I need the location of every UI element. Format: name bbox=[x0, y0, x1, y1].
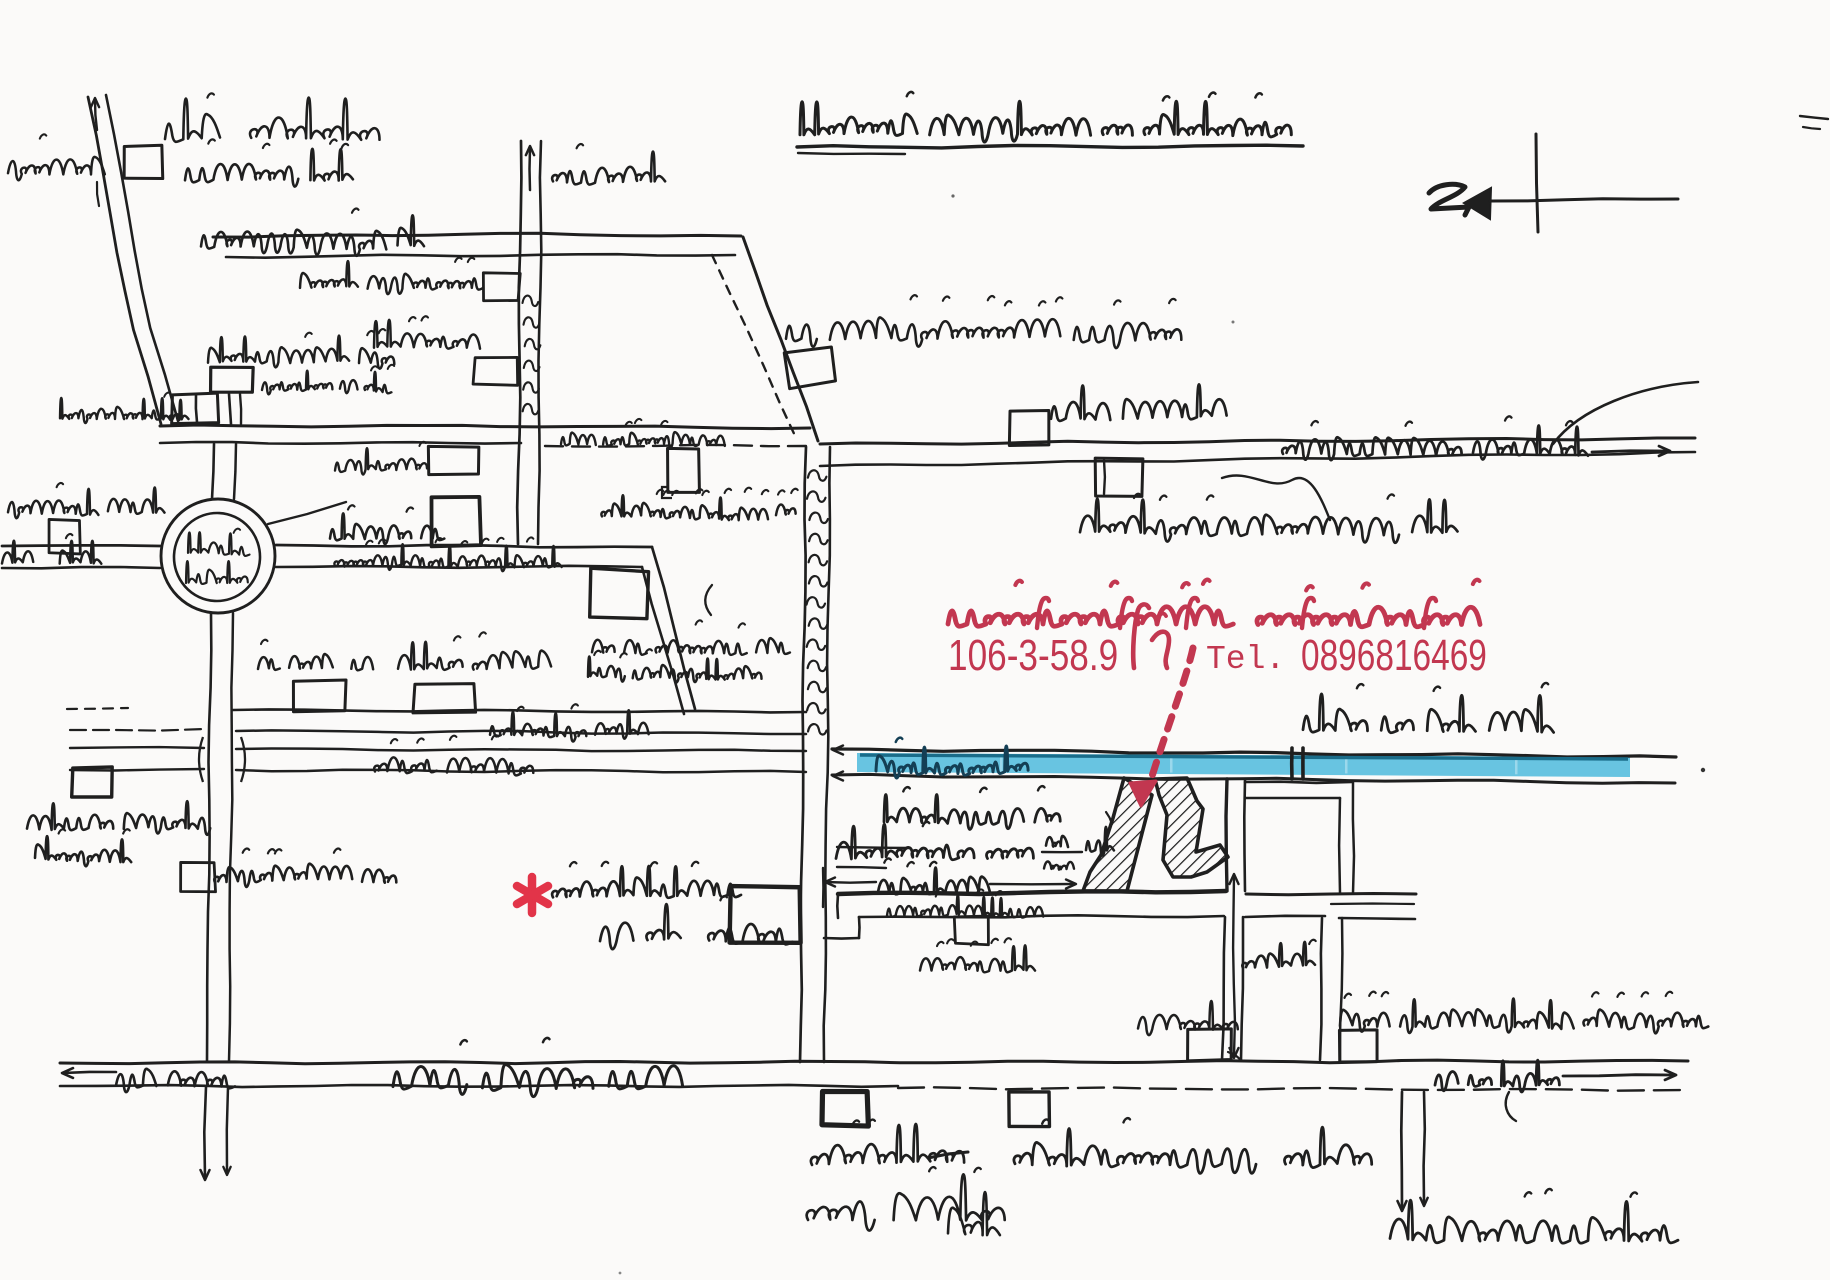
svg-text:106-3-58.9: 106-3-58.9 bbox=[948, 631, 1118, 680]
svg-text:0896816469: 0896816469 bbox=[1301, 632, 1487, 680]
svg-text:Tel.: Tel. bbox=[1206, 641, 1285, 678]
